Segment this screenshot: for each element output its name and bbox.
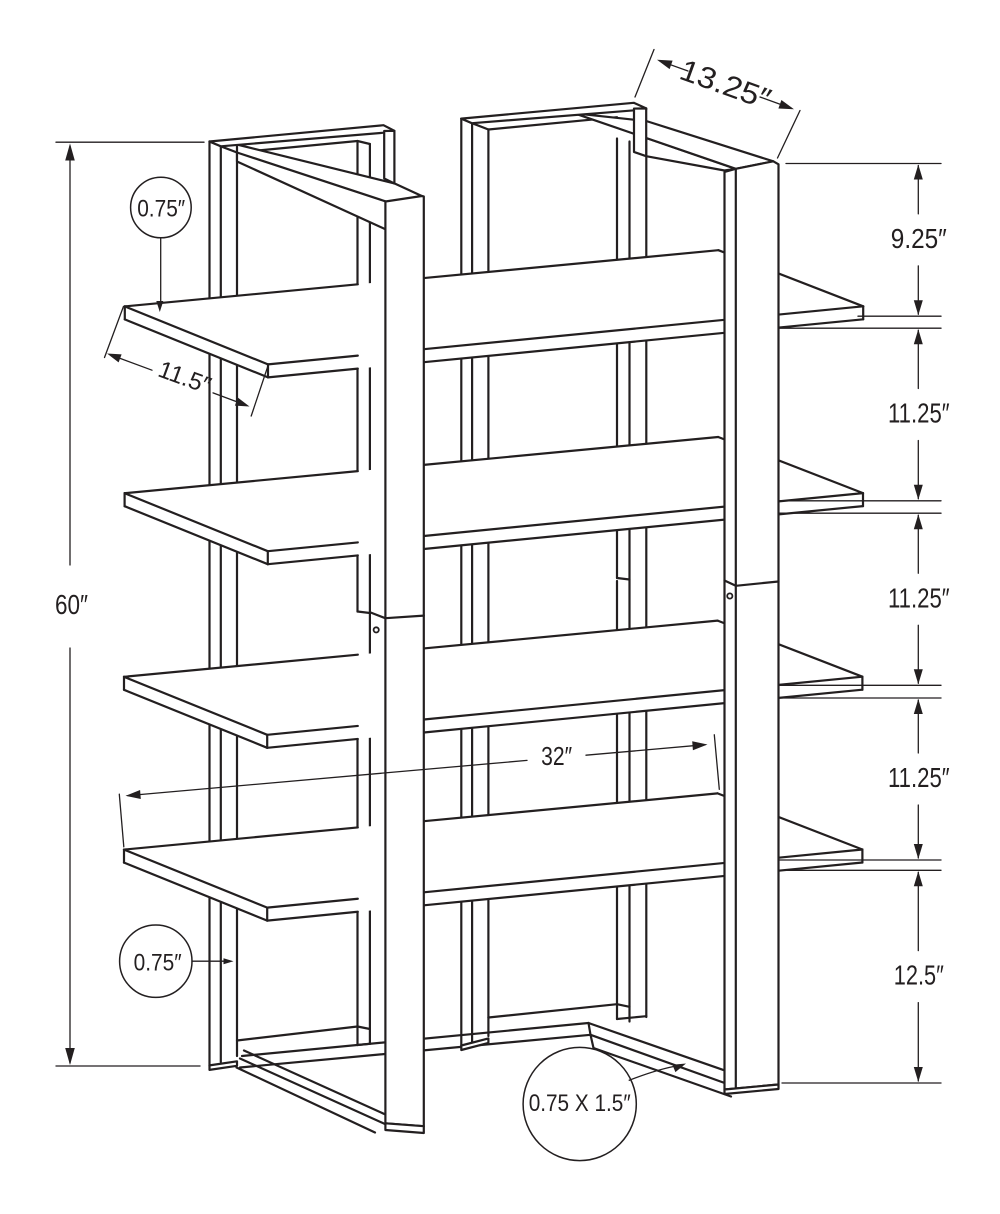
svg-text:11.25″: 11.25″	[888, 398, 950, 429]
svg-text:32″: 32″	[541, 741, 572, 771]
svg-text:0.75″: 0.75″	[134, 950, 182, 977]
svg-text:9.25″: 9.25″	[891, 223, 947, 254]
svg-text:12.5″: 12.5″	[894, 960, 944, 991]
svg-text:0.75 X 1.5″: 0.75 X 1.5″	[529, 1090, 631, 1117]
svg-text:11.25″: 11.25″	[888, 762, 950, 793]
svg-text:0.75″: 0.75″	[137, 196, 185, 223]
svg-text:60″: 60″	[55, 589, 88, 620]
svg-text:11.25″: 11.25″	[888, 582, 950, 613]
